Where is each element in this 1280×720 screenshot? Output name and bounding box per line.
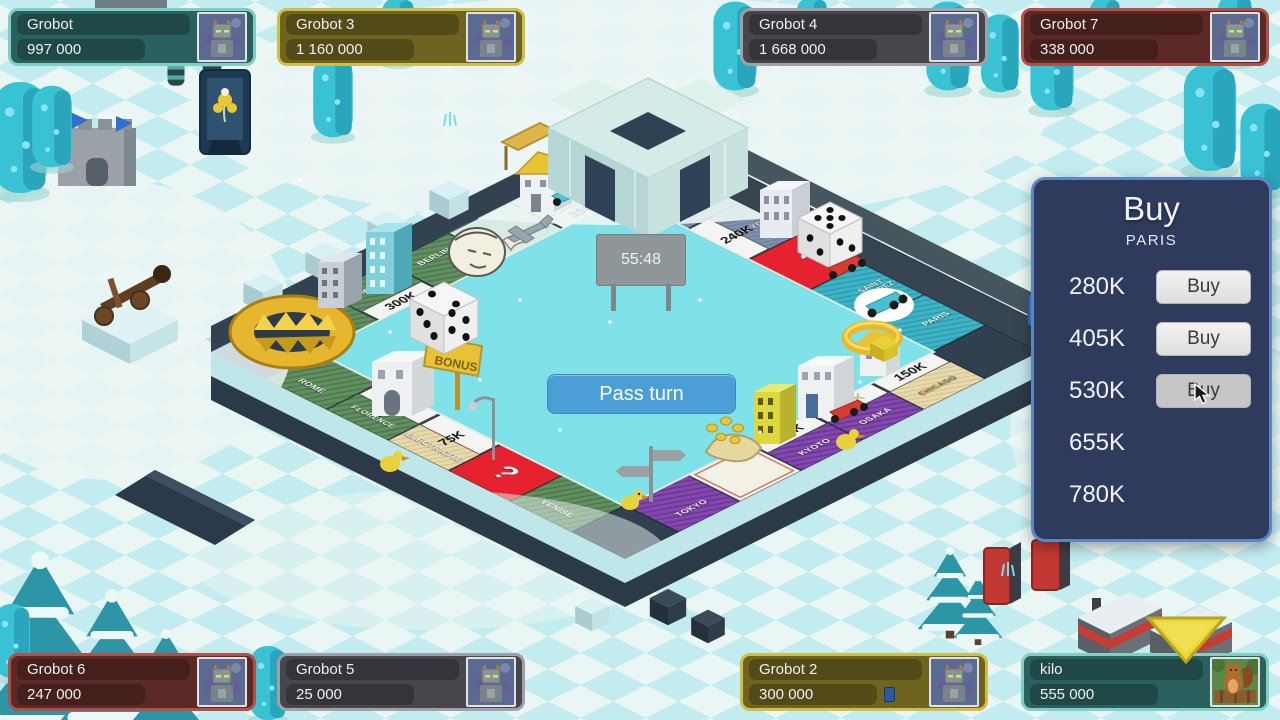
property-chip <box>884 687 895 702</box>
buy-offer-row: 780K <box>1034 469 1269 521</box>
buy-button-405k[interactable]: Buy <box>1156 322 1251 356</box>
robot-avatar <box>466 12 516 62</box>
game-stage: GENÈVE 350K BERLIN HAMBOURG 300K COLOGNE… <box>0 0 1280 720</box>
player-money: 1 668 000 <box>749 39 877 60</box>
player-name: Grobot <box>17 14 190 35</box>
player-name: Grobot 3 <box>286 14 459 35</box>
robot-avatar <box>197 657 247 707</box>
player-panel-grobot-5: Grobot 5 25 000 <box>277 653 525 711</box>
offer-price: 530K <box>1054 377 1140 405</box>
pass-turn-button[interactable]: Pass turn <box>547 374 736 414</box>
player-panel-grobot-4: Grobot 4 1 668 000 <box>740 8 988 66</box>
robot-avatar <box>466 657 516 707</box>
offer-price: 655K <box>1054 429 1140 457</box>
buy-offer-row: 655K <box>1034 417 1269 469</box>
player-name: Grobot 4 <box>749 14 922 35</box>
timer-leg <box>611 284 616 311</box>
player-panel-grobot-6: Grobot 6 247 000 <box>8 653 256 711</box>
player-panel-grobot: Grobot 997 000 <box>8 8 256 66</box>
buy-offer-row: 530K Buy <box>1034 365 1269 417</box>
player-name: Grobot 6 <box>17 659 190 680</box>
turn-timer: 55:48 <box>596 234 686 286</box>
player-money: 997 000 <box>17 39 145 60</box>
buy-dialog: Buy PARIS 280K Buy 405K Buy 530K Buy 655… <box>1031 177 1272 542</box>
player-money: 1 160 000 <box>286 39 414 60</box>
robot-avatar <box>929 12 979 62</box>
player-name: kilo <box>1030 659 1203 680</box>
robot-avatar <box>1210 12 1260 62</box>
player-name: Grobot 7 <box>1030 14 1203 35</box>
turn-timer-value: 55:48 <box>621 251 661 268</box>
pass-turn-label: Pass turn <box>599 383 683 406</box>
player-money: 25 000 <box>286 684 414 705</box>
buy-button-280k[interactable]: Buy <box>1156 270 1251 304</box>
player-money: 300 000 <box>749 684 877 705</box>
buy-dialog-property: PARIS <box>1034 232 1269 249</box>
player-panel-kilo: kilo 555 000 <box>1021 653 1269 711</box>
player-panel-grobot-2: Grobot 2 300 000 <box>740 653 988 711</box>
player-panel-grobot-7: Grobot 7 338 000 <box>1021 8 1269 66</box>
robot-avatar <box>197 12 247 62</box>
buy-offer-row: 405K Buy <box>1034 313 1269 365</box>
timer-leg <box>666 284 671 311</box>
squirrel-avatar <box>1210 657 1260 707</box>
offer-price: 280K <box>1054 273 1140 301</box>
buy-offer-row: 280K Buy <box>1034 261 1269 313</box>
player-panel-grobot-3: Grobot 3 1 160 000 <box>277 8 525 66</box>
player-name: Grobot 5 <box>286 659 459 680</box>
player-name: Grobot 2 <box>749 659 922 680</box>
offer-price: 405K <box>1054 325 1140 353</box>
offer-price: 780K <box>1054 481 1140 509</box>
buy-button-530k[interactable]: Buy <box>1156 374 1251 408</box>
robot-avatar <box>929 657 979 707</box>
player-money: 338 000 <box>1030 39 1158 60</box>
player-money: 247 000 <box>17 684 145 705</box>
player-money: 555 000 <box>1030 684 1158 705</box>
buy-dialog-title: Buy <box>1034 190 1269 228</box>
